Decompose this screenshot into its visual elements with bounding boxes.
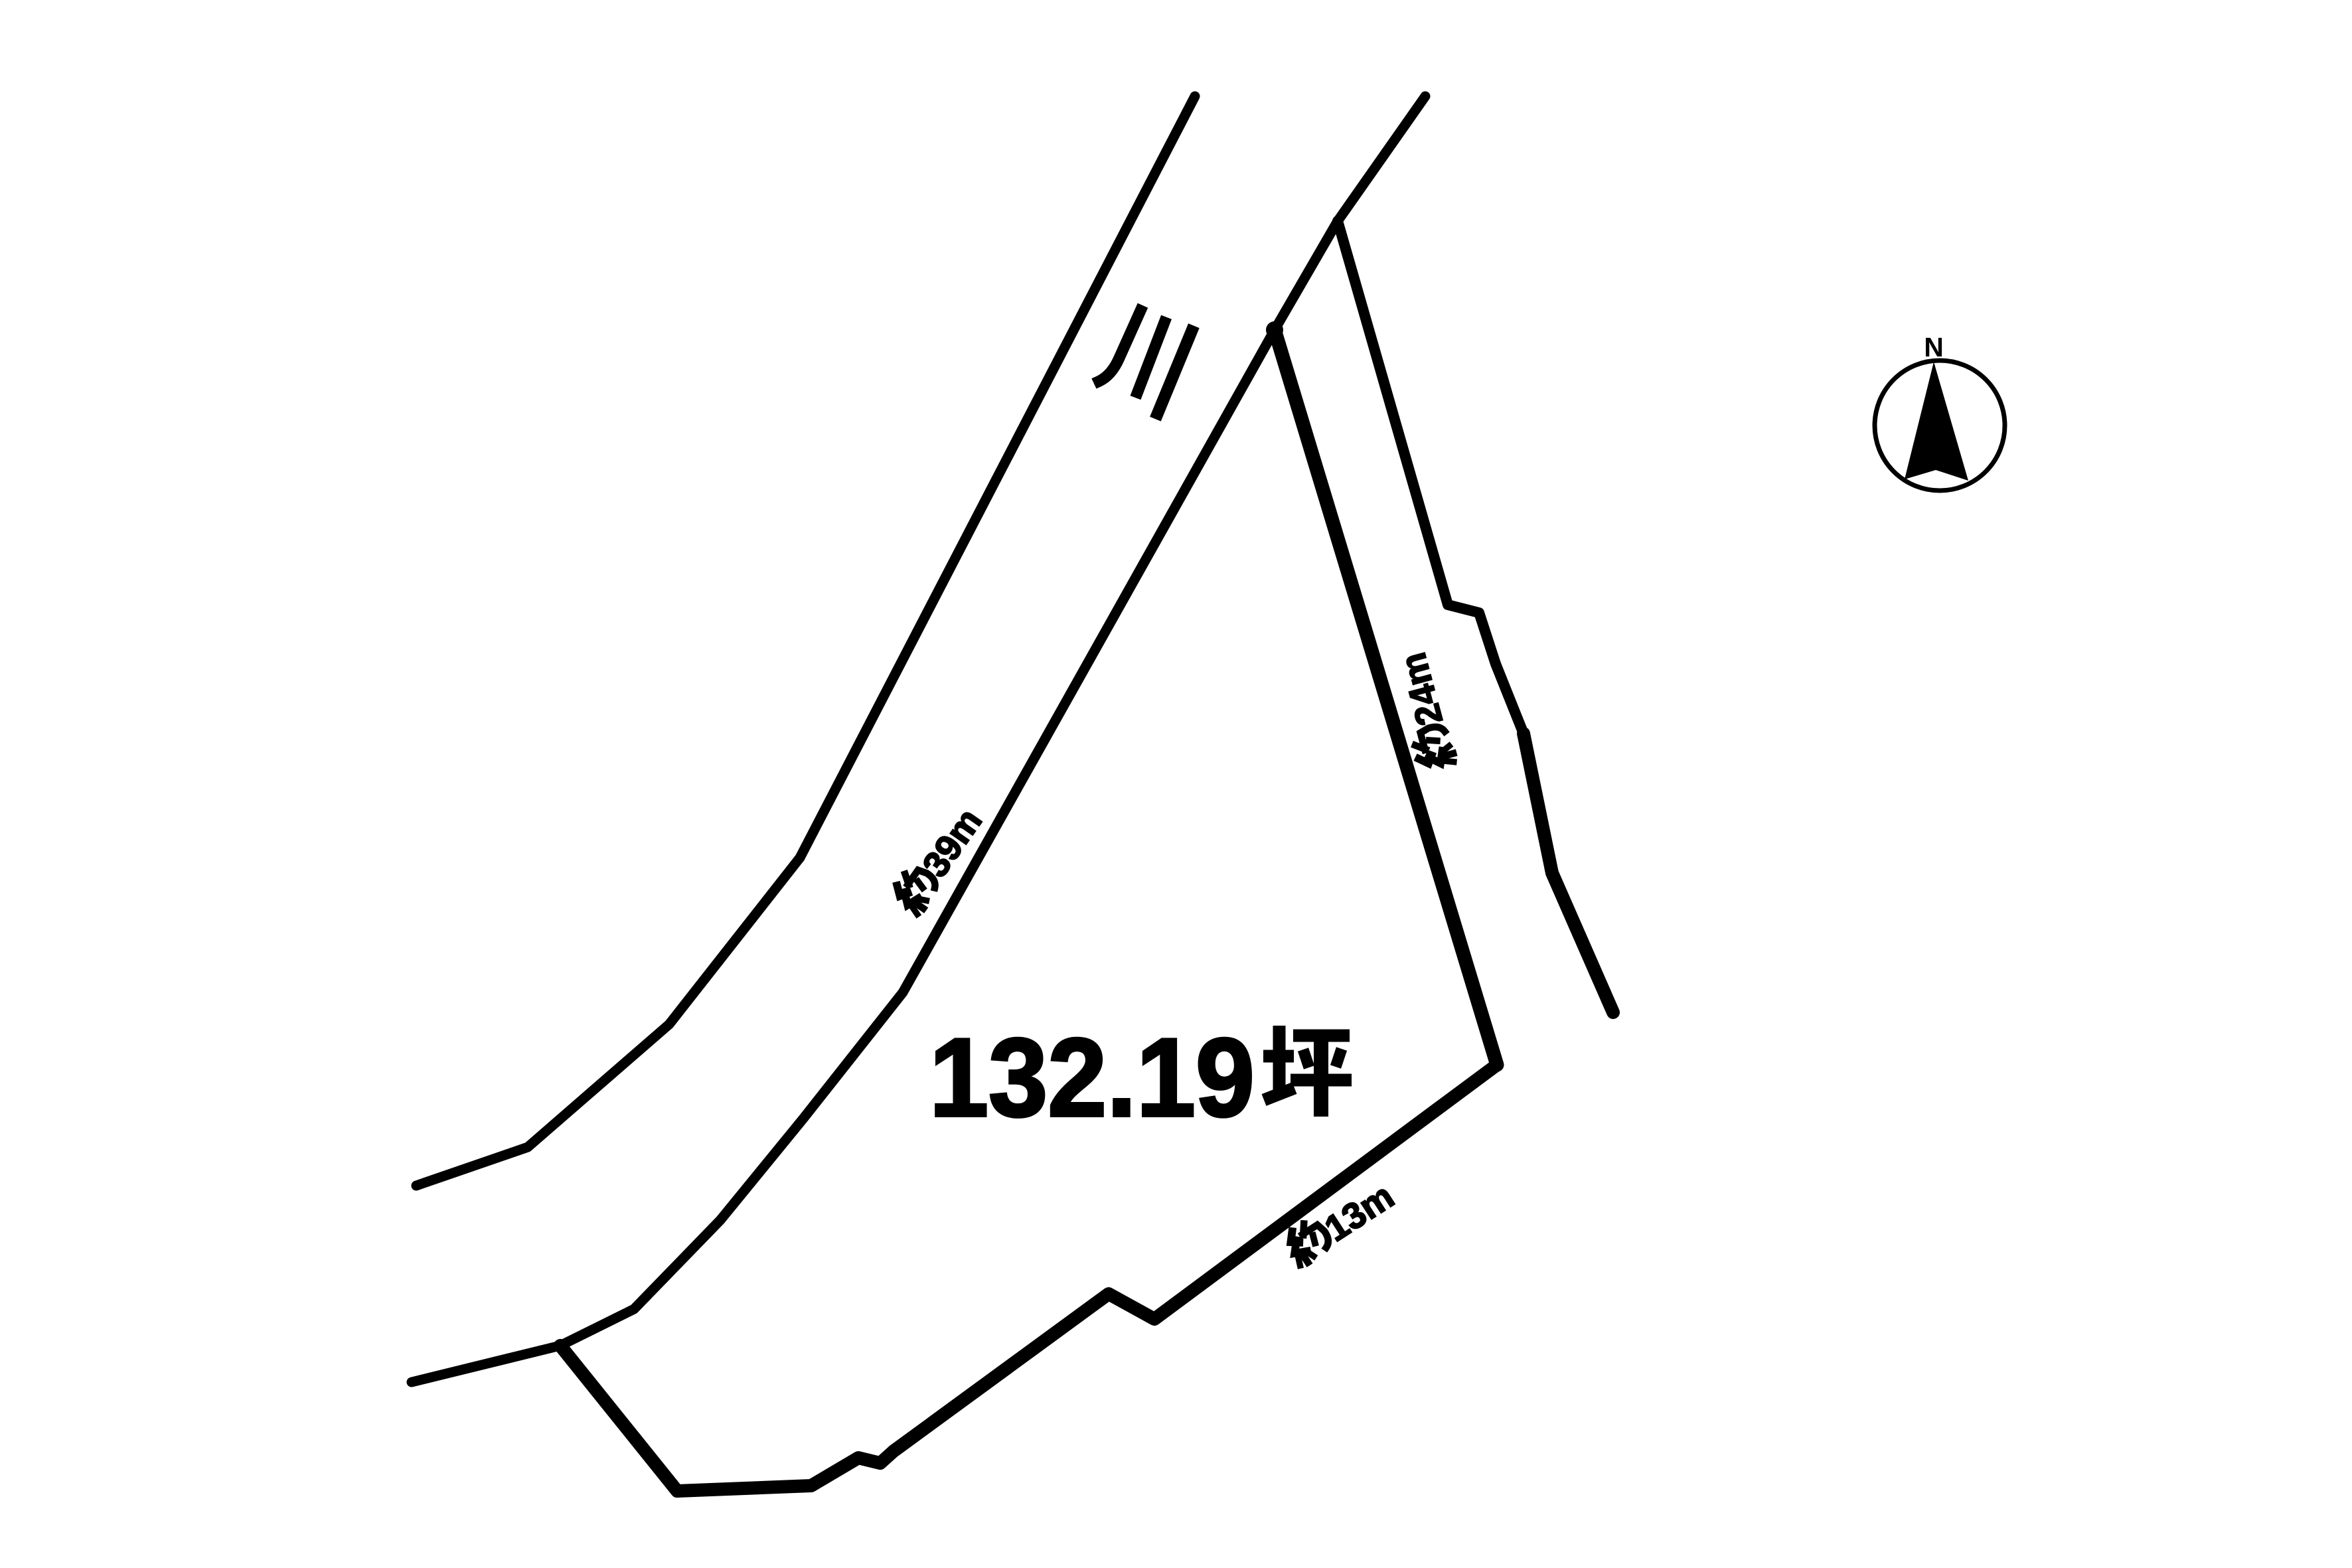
svg-text:132.19: 132.19 [929, 1015, 1255, 1140]
svg-text:N: N [1924, 332, 1944, 362]
